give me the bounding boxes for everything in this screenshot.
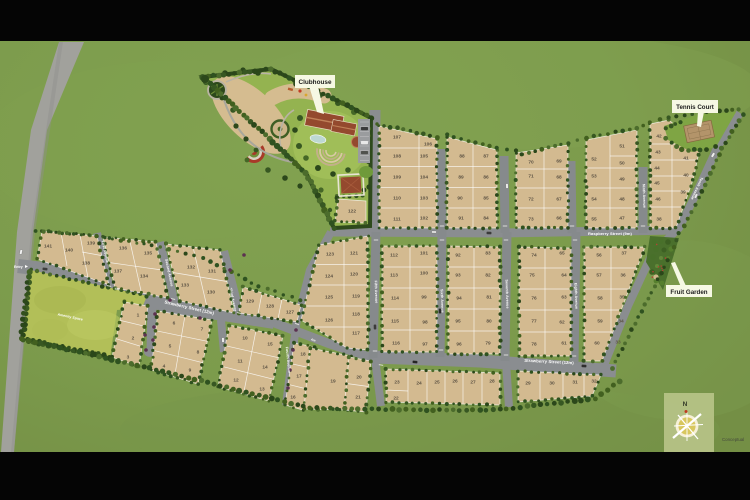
svg-text:110: 110 — [393, 196, 401, 202]
svg-text:134: 134 — [140, 274, 148, 280]
svg-text:66: 66 — [556, 216, 562, 222]
svg-text:43: 43 — [655, 150, 661, 156]
svg-text:90: 90 — [457, 196, 463, 202]
svg-text:54: 54 — [591, 197, 597, 203]
svg-text:34: 34 — [618, 319, 624, 325]
svg-text:53: 53 — [591, 174, 597, 180]
svg-text:112: 112 — [390, 253, 398, 259]
svg-text:95: 95 — [455, 319, 461, 325]
svg-text:77: 77 — [531, 319, 537, 325]
svg-text:38: 38 — [656, 217, 662, 223]
svg-text:57: 57 — [596, 273, 602, 279]
svg-text:5: 5 — [169, 344, 172, 350]
svg-text:118: 118 — [352, 312, 360, 318]
svg-text:16: 16 — [290, 395, 296, 401]
svg-text:117: 117 — [352, 331, 360, 337]
svg-text:13: 13 — [259, 387, 265, 393]
svg-text:Conceptual: Conceptual — [722, 437, 744, 442]
svg-text:63: 63 — [561, 295, 567, 301]
svg-text:52: 52 — [591, 157, 597, 163]
svg-text:129: 129 — [246, 299, 254, 305]
svg-text:70: 70 — [528, 160, 534, 166]
svg-text:136: 136 — [119, 246, 127, 252]
svg-text:102: 102 — [420, 216, 428, 222]
svg-text:15: 15 — [267, 342, 273, 348]
svg-text:60: 60 — [594, 341, 600, 347]
svg-text:14: 14 — [262, 365, 268, 371]
svg-text:99: 99 — [421, 295, 427, 301]
svg-text:140: 140 — [65, 248, 73, 254]
svg-text:128: 128 — [266, 304, 274, 310]
svg-text:116: 116 — [392, 341, 400, 347]
svg-text:141: 141 — [44, 244, 52, 250]
svg-text:Fruit Garden: Fruit Garden — [670, 289, 707, 296]
svg-text:40: 40 — [683, 173, 689, 179]
svg-text:100: 100 — [420, 271, 428, 277]
svg-text:79: 79 — [485, 341, 491, 347]
svg-text:74: 74 — [531, 253, 537, 259]
svg-text:59: 59 — [597, 319, 603, 325]
svg-text:18: 18 — [300, 352, 306, 358]
svg-text:44: 44 — [654, 166, 660, 172]
svg-text:69: 69 — [556, 159, 562, 165]
svg-text:123: 123 — [326, 252, 334, 258]
svg-text:47: 47 — [619, 216, 625, 222]
svg-text:48: 48 — [619, 197, 625, 203]
svg-text:107: 107 — [393, 135, 401, 141]
svg-text:20: 20 — [356, 375, 362, 381]
svg-text:Clubhouse: Clubhouse — [298, 79, 331, 86]
svg-text:92: 92 — [455, 253, 461, 259]
svg-text:Entry: Entry — [14, 265, 23, 269]
svg-text:28: 28 — [489, 379, 495, 385]
svg-text:106: 106 — [424, 142, 432, 148]
svg-text:29: 29 — [525, 381, 531, 387]
svg-text:58: 58 — [597, 296, 603, 302]
svg-text:126: 126 — [325, 318, 333, 324]
svg-text:6: 6 — [173, 321, 176, 327]
svg-text:84: 84 — [483, 216, 489, 222]
svg-text:97: 97 — [422, 342, 428, 348]
svg-text:49: 49 — [619, 177, 625, 183]
svg-text:50: 50 — [619, 161, 625, 167]
svg-text:103: 103 — [420, 196, 428, 202]
svg-text:96: 96 — [456, 342, 462, 348]
svg-text:9: 9 — [189, 368, 192, 374]
svg-text:114: 114 — [391, 296, 399, 302]
svg-text:124: 124 — [325, 274, 333, 280]
svg-text:Tennis Court: Tennis Court — [676, 104, 714, 111]
svg-text:71: 71 — [528, 174, 534, 180]
svg-text:127: 127 — [286, 310, 294, 316]
svg-text:46: 46 — [655, 197, 661, 203]
svg-text:N: N — [683, 401, 688, 408]
svg-text:125: 125 — [325, 295, 333, 301]
svg-text:67: 67 — [556, 197, 562, 203]
svg-text:87: 87 — [483, 154, 489, 160]
svg-text:22: 22 — [393, 396, 399, 402]
svg-text:55: 55 — [591, 217, 597, 223]
svg-text:131: 131 — [208, 269, 216, 275]
svg-text:94: 94 — [456, 296, 462, 302]
svg-text:139: 139 — [87, 241, 95, 247]
svg-text:2: 2 — [132, 336, 135, 342]
svg-text:75: 75 — [529, 273, 535, 279]
svg-text:113: 113 — [390, 273, 398, 279]
svg-text:Fifth Avenue: Fifth Avenue — [374, 281, 379, 304]
svg-text:85: 85 — [483, 196, 489, 202]
svg-text:24: 24 — [416, 381, 422, 387]
svg-text:7: 7 — [201, 327, 204, 333]
svg-text:56: 56 — [596, 253, 602, 259]
svg-text:25: 25 — [434, 380, 440, 386]
svg-text:26: 26 — [452, 379, 458, 385]
svg-text:73: 73 — [528, 217, 534, 223]
svg-text:27: 27 — [470, 380, 476, 386]
svg-text:65: 65 — [559, 251, 565, 257]
svg-text:8: 8 — [197, 350, 200, 356]
svg-text:138: 138 — [82, 261, 90, 267]
svg-text:17: 17 — [296, 374, 302, 380]
svg-text:Ninth Avenue: Ninth Avenue — [642, 184, 647, 208]
svg-text:30: 30 — [549, 381, 555, 387]
svg-text:37: 37 — [621, 251, 627, 257]
svg-text:62: 62 — [559, 320, 565, 326]
svg-text:98: 98 — [422, 320, 428, 326]
svg-text:42: 42 — [656, 134, 662, 140]
svg-text:12: 12 — [233, 378, 239, 384]
svg-text:115: 115 — [391, 319, 399, 325]
svg-text:Raspberry Street (9m): Raspberry Street (9m) — [588, 231, 632, 236]
svg-text:76: 76 — [531, 296, 537, 302]
svg-text:135: 135 — [144, 251, 152, 257]
svg-text:137: 137 — [114, 269, 122, 275]
svg-text:32: 32 — [591, 379, 597, 385]
svg-text:23: 23 — [394, 380, 400, 386]
svg-text:109: 109 — [393, 175, 401, 181]
svg-text:104: 104 — [420, 175, 428, 181]
svg-text:64: 64 — [561, 273, 567, 279]
svg-text:83: 83 — [485, 251, 491, 257]
svg-text:21: 21 — [355, 395, 361, 401]
svg-text:51: 51 — [619, 144, 625, 150]
svg-text:61: 61 — [561, 341, 567, 347]
svg-text:36: 36 — [620, 273, 626, 279]
svg-text:91: 91 — [458, 216, 464, 222]
svg-text:82: 82 — [485, 273, 491, 279]
svg-text:39: 39 — [680, 190, 686, 196]
svg-text:105: 105 — [420, 154, 428, 160]
svg-text:86: 86 — [483, 175, 489, 181]
svg-text:101: 101 — [420, 251, 428, 257]
svg-text:119: 119 — [352, 294, 360, 300]
svg-text:80: 80 — [486, 319, 492, 325]
svg-text:41: 41 — [683, 156, 689, 162]
svg-text:132: 132 — [187, 265, 195, 271]
svg-text:121: 121 — [350, 251, 358, 257]
svg-text:108: 108 — [393, 154, 401, 160]
svg-text:122: 122 — [348, 209, 356, 215]
svg-text:89: 89 — [458, 175, 464, 181]
svg-text:88: 88 — [459, 154, 465, 160]
svg-text:111: 111 — [393, 217, 401, 223]
svg-text:81: 81 — [486, 295, 492, 301]
svg-text:68: 68 — [556, 175, 562, 181]
svg-text:130: 130 — [207, 290, 215, 296]
svg-text:45: 45 — [654, 181, 660, 187]
svg-text:133: 133 — [181, 283, 189, 289]
svg-text:10: 10 — [242, 336, 248, 342]
svg-text:120: 120 — [350, 272, 358, 278]
svg-text:93: 93 — [455, 273, 461, 279]
svg-text:31: 31 — [572, 380, 578, 386]
svg-text:11: 11 — [237, 359, 242, 365]
svg-text:3: 3 — [127, 355, 130, 361]
svg-text:1: 1 — [137, 313, 140, 319]
svg-text:19: 19 — [330, 379, 336, 385]
svg-text:78: 78 — [531, 342, 537, 348]
svg-text:33: 33 — [615, 340, 621, 346]
svg-text:72: 72 — [528, 197, 534, 203]
